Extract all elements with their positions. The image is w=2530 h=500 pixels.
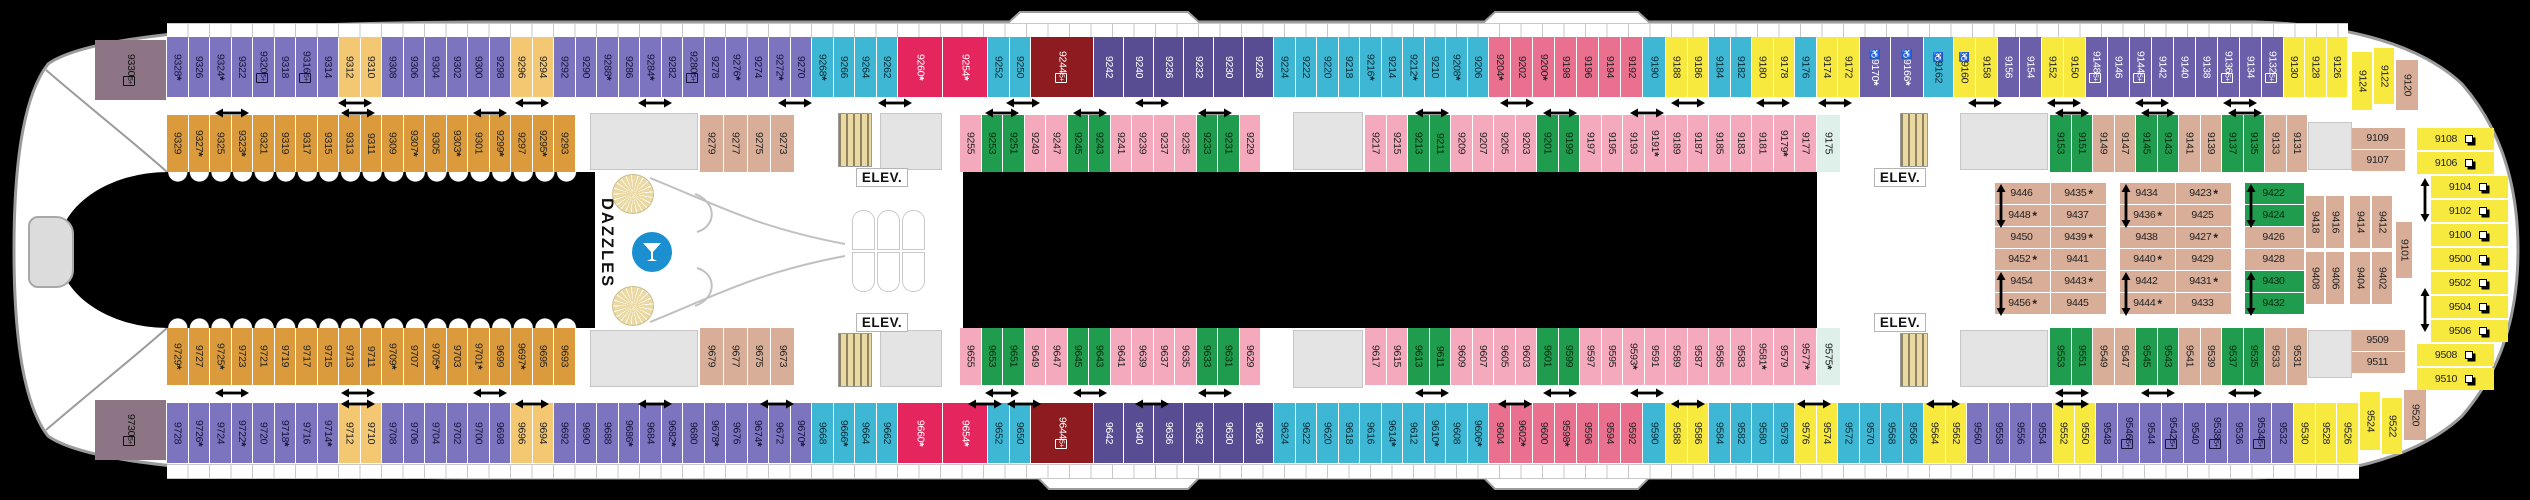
cabin-9714[interactable]: 9714* bbox=[318, 403, 339, 463]
cabin-9274[interactable]: 9274 bbox=[748, 37, 769, 97]
cabin-9300[interactable]: 9300 bbox=[468, 37, 489, 97]
cabin-9425[interactable]: 9425 bbox=[2176, 205, 2231, 226]
cabin-9214[interactable]: 9214 bbox=[1382, 37, 1403, 97]
cabin-9145[interactable]: 9145 bbox=[2136, 115, 2157, 172]
cabin-9538[interactable]: 95385+ bbox=[2206, 403, 2227, 463]
cabin-9590[interactable]: 9590 bbox=[1643, 403, 1665, 463]
cabin-9630[interactable]: 9630 bbox=[1214, 403, 1243, 463]
cabin-9188[interactable]: 9188 bbox=[1666, 37, 1687, 97]
cabin-9162[interactable]: ♿9162 bbox=[1924, 37, 1953, 97]
cabin-9510[interactable]: 9510 bbox=[2417, 368, 2494, 390]
cabin-9690[interactable]: 9690 bbox=[576, 403, 597, 463]
cabin-9179[interactable]: 9179* bbox=[1774, 115, 1795, 172]
cabin-9655[interactable]: 9655 bbox=[960, 328, 981, 385]
cabin-9723[interactable]: 9723 bbox=[232, 328, 253, 385]
cabin-9592[interactable]: 9592 bbox=[1621, 403, 1642, 463]
cabin-9522[interactable]: 9522 bbox=[2382, 398, 2402, 454]
cabin-9231[interactable]: 9231 bbox=[1218, 115, 1239, 172]
cabin-9531[interactable]: 9531 bbox=[2287, 328, 2308, 385]
cabin-9237[interactable]: 9237 bbox=[1154, 115, 1175, 172]
cabin-9688[interactable]: 9688 bbox=[597, 403, 618, 463]
cabin-9607[interactable]: 9607 bbox=[1473, 328, 1494, 385]
cabin-9315[interactable]: 9315 bbox=[318, 115, 339, 172]
cabin-9273[interactable]: 9273 bbox=[771, 115, 794, 172]
elevator-car[interactable] bbox=[852, 252, 875, 292]
cabin-9408[interactable]: 9408 bbox=[2306, 252, 2324, 304]
cabin-9130[interactable]: 9130 bbox=[2284, 37, 2305, 97]
cabin-9309[interactable]: 9309 bbox=[382, 115, 403, 172]
cabin-9104[interactable]: 9104 bbox=[2431, 176, 2508, 198]
cabin-9235[interactable]: 9235 bbox=[1175, 115, 1196, 172]
cabin-9534[interactable]: 95345+ bbox=[2250, 403, 2271, 463]
cabin-9241[interactable]: 9241 bbox=[1111, 115, 1132, 172]
cabin-9543[interactable]: 9543 bbox=[2158, 328, 2179, 385]
cabin-9290[interactable]: 9290 bbox=[576, 37, 597, 97]
stairwell[interactable] bbox=[1900, 333, 1928, 387]
elevator-car[interactable] bbox=[877, 252, 900, 292]
cabin-9176[interactable]: 9176 bbox=[1795, 37, 1816, 97]
cabin-9307[interactable]: 9307* bbox=[404, 115, 425, 172]
cabin-9229[interactable]: 9229 bbox=[1240, 115, 1261, 172]
cabin-9190[interactable]: 9190 bbox=[1643, 37, 1665, 97]
cabin-9206[interactable]: 9206 bbox=[1468, 37, 1489, 97]
cabin-9504[interactable]: 9504 bbox=[2431, 296, 2508, 318]
cabin-9140[interactable]: 9140 bbox=[2174, 37, 2195, 97]
cabin-9673[interactable]: 9673 bbox=[771, 328, 794, 385]
cabin-9199[interactable]: 9199 bbox=[1559, 115, 1580, 172]
cabin-9217[interactable]: 9217 bbox=[1365, 115, 1386, 172]
cabin-9226[interactable]: 9226 bbox=[1244, 37, 1273, 97]
cabin-9418[interactable]: 9418 bbox=[2306, 196, 2324, 248]
cabin-9322[interactable]: 9322 bbox=[232, 37, 253, 97]
cabin-9122[interactable]: 9122 bbox=[2374, 48, 2394, 104]
cabin-9509[interactable]: 9509 bbox=[2352, 330, 2405, 351]
cabin-9610[interactable]: 9610* bbox=[1425, 403, 1446, 463]
cabin-9532[interactable]: 9532 bbox=[2272, 403, 2293, 463]
elevator-car[interactable] bbox=[902, 252, 925, 292]
cabin-9730[interactable]: 97305+ bbox=[95, 400, 166, 460]
cabin-9443[interactable]: 9443* bbox=[2051, 271, 2106, 292]
cabin-9699[interactable]: 9699 bbox=[490, 328, 511, 385]
cabin-9132[interactable]: 91325+ bbox=[2262, 37, 2283, 97]
cabin-9138[interactable]: 9138 bbox=[2196, 37, 2217, 97]
cabin-9548[interactable]: 9548 bbox=[2096, 403, 2117, 463]
cabin-9635[interactable]: 9635 bbox=[1175, 328, 1196, 385]
cabin-9284[interactable]: 9284* bbox=[640, 37, 661, 97]
cabin-9439[interactable]: 9439* bbox=[2051, 227, 2106, 248]
cabin-9708[interactable]: 9708 bbox=[382, 403, 403, 463]
cabin-9286[interactable]: 9286 bbox=[619, 37, 640, 97]
cabin-9172[interactable]: 9172 bbox=[1838, 37, 1859, 97]
cabin-9506[interactable]: 9506 bbox=[2431, 320, 2508, 342]
cabin-9314[interactable]: 9314 bbox=[318, 37, 339, 97]
cabin-9275[interactable]: 9275 bbox=[748, 115, 771, 172]
cabin-9581[interactable]: 9581* bbox=[1752, 328, 1773, 385]
cabin-9598[interactable]: 9598* bbox=[1555, 403, 1576, 463]
cabin-9612[interactable]: 9612 bbox=[1403, 403, 1424, 463]
cabin-9579[interactable]: 9579 bbox=[1774, 328, 1795, 385]
cabin-9435[interactable]: 9435* bbox=[2051, 183, 2106, 204]
cabin-9524[interactable]: 9524 bbox=[2360, 392, 2380, 450]
cabin-9184[interactable]: 9184 bbox=[1709, 37, 1730, 97]
cabin-9719[interactable]: 9719 bbox=[275, 328, 296, 385]
cabin-9715[interactable]: 9715 bbox=[318, 328, 339, 385]
cabin-9156[interactable]: 9156 bbox=[1998, 37, 2019, 97]
cabin-9222[interactable]: 9222 bbox=[1296, 37, 1317, 97]
cabin-9177[interactable]: 9177 bbox=[1795, 115, 1816, 172]
cabin-9170[interactable]: ♿9170* bbox=[1860, 37, 1890, 97]
cabin-9208[interactable]: 9208* bbox=[1446, 37, 1467, 97]
cabin-9549[interactable]: 9549 bbox=[2093, 328, 2114, 385]
cabin-9272[interactable]: 9272* bbox=[769, 37, 790, 97]
cabin-9440[interactable]: 9440* bbox=[2120, 249, 2175, 270]
cabin-9716[interactable]: 9716 bbox=[296, 403, 317, 463]
cabin-9611[interactable]: 9611 bbox=[1430, 328, 1451, 385]
cabin-9319[interactable]: 9319 bbox=[275, 115, 296, 172]
cabin-9186[interactable]: 9186 bbox=[1688, 37, 1709, 97]
cabin-9568[interactable]: 9568 bbox=[1881, 403, 1902, 463]
cabin-9276[interactable]: 9276* bbox=[726, 37, 747, 97]
cabin-9599[interactable]: 9599 bbox=[1559, 328, 1580, 385]
cabin-9675[interactable]: 9675 bbox=[748, 328, 771, 385]
cabin-9299[interactable]: 9299* bbox=[490, 115, 511, 172]
cabin-9668[interactable]: 9668 bbox=[812, 403, 833, 463]
cabin-9533[interactable]: 9533 bbox=[2265, 328, 2286, 385]
cabin-9645[interactable]: 9645 bbox=[1068, 328, 1089, 385]
cabin-9320[interactable]: 93205+ bbox=[253, 37, 274, 97]
cabin-9321[interactable]: 9321 bbox=[253, 115, 274, 172]
cabin-9680[interactable]: 9680 bbox=[683, 403, 704, 463]
cabin-9553[interactable]: 9553 bbox=[2050, 328, 2071, 385]
cabin-9207[interactable]: 9207 bbox=[1473, 115, 1494, 172]
cabin-9542[interactable]: 95425+ bbox=[2162, 403, 2183, 463]
cabin-9133[interactable]: 9133 bbox=[2265, 115, 2286, 172]
cabin-9150[interactable]: 9150 bbox=[2064, 37, 2085, 97]
cabin-9185[interactable]: 9185 bbox=[1709, 115, 1730, 172]
cabin-9441[interactable]: 9441 bbox=[2051, 249, 2106, 270]
cabin-9154[interactable]: 9154 bbox=[2020, 37, 2041, 97]
cabin-9726[interactable]: 9726* bbox=[189, 403, 210, 463]
cabin-9660[interactable]: 9660* bbox=[898, 403, 942, 463]
cabin-9620[interactable]: 9620 bbox=[1317, 403, 1338, 463]
cabin-9593[interactable]: 9593* bbox=[1623, 328, 1644, 385]
cabin-9551[interactable]: 9551 bbox=[2072, 328, 2093, 385]
cabin-9108[interactable]: 9108 bbox=[2417, 128, 2494, 150]
cabin-9584[interactable]: 9584 bbox=[1709, 403, 1730, 463]
cabin-9288[interactable]: 9288* bbox=[597, 37, 618, 97]
cabin-9250[interactable]: 9250 bbox=[1010, 37, 1031, 97]
cabin-9704[interactable]: 9704 bbox=[425, 403, 446, 463]
cabin-9540[interactable]: 9540 bbox=[2184, 403, 2205, 463]
cabin-9637[interactable]: 9637 bbox=[1154, 328, 1175, 385]
cabin-9180[interactable]: 9180 bbox=[1752, 37, 1773, 97]
cabin-9252[interactable]: 9252 bbox=[988, 37, 1009, 97]
cabin-9556[interactable]: 9556 bbox=[2010, 403, 2031, 463]
cabin-9124[interactable]: 9124 bbox=[2352, 52, 2372, 110]
cabin-9572[interactable]: 9572 bbox=[1838, 403, 1859, 463]
cabin-9624[interactable]: 9624 bbox=[1274, 403, 1295, 463]
cabin-9427[interactable]: 9427* bbox=[2176, 227, 2231, 248]
cabin-9570[interactable]: 9570 bbox=[1860, 403, 1881, 463]
cabin-9642[interactable]: 9642 bbox=[1094, 403, 1123, 463]
cabin-9233[interactable]: 9233 bbox=[1197, 115, 1218, 172]
cabin-9144[interactable]: 91445+ bbox=[2130, 37, 2151, 97]
cabin-9651[interactable]: 9651 bbox=[1003, 328, 1024, 385]
cabin-9240[interactable]: 9240 bbox=[1124, 37, 1153, 97]
cabin-9725[interactable]: 9725* bbox=[210, 328, 231, 385]
cabin-9137[interactable]: 9137 bbox=[2222, 115, 2243, 172]
cabin-9724[interactable]: 9724 bbox=[210, 403, 231, 463]
cabin-9102[interactable]: 9102 bbox=[2431, 200, 2508, 222]
cabin-9148[interactable]: 91485+ bbox=[2086, 37, 2107, 97]
cabin-9589[interactable]: 9589 bbox=[1666, 328, 1687, 385]
cabin-9706[interactable]: 9706 bbox=[404, 403, 425, 463]
cabin-9329[interactable]: 9329 bbox=[167, 115, 188, 172]
cabin-9437[interactable]: 9437 bbox=[2051, 205, 2106, 226]
cabin-9653[interactable]: 9653 bbox=[982, 328, 1003, 385]
cabin-9500[interactable]: 9500 bbox=[2431, 248, 2508, 270]
cabin-9428[interactable]: 9428 bbox=[2245, 249, 2304, 270]
cabin-9197[interactable]: 9197 bbox=[1580, 115, 1601, 172]
cabin-9629[interactable]: 9629 bbox=[1240, 328, 1261, 385]
cabin-9136[interactable]: 91365+ bbox=[2218, 37, 2239, 97]
cabin-9626[interactable]: 9626 bbox=[1244, 403, 1273, 463]
cabin-9649[interactable]: 9649 bbox=[1025, 328, 1046, 385]
cabin-9631[interactable]: 9631 bbox=[1218, 328, 1239, 385]
cabin-9107[interactable]: 9107 bbox=[2352, 150, 2405, 171]
cabin-9215[interactable]: 9215 bbox=[1387, 115, 1408, 172]
cabin-9306[interactable]: 9306 bbox=[404, 37, 425, 97]
cabin-9545[interactable]: 9545 bbox=[2136, 328, 2157, 385]
cabin-9181[interactable]: 9181 bbox=[1752, 115, 1773, 172]
cabin-9262[interactable]: 9262 bbox=[877, 37, 898, 97]
elevator-car[interactable] bbox=[877, 210, 900, 250]
cabin-9151[interactable]: 9151 bbox=[2072, 115, 2093, 172]
cabin-9717[interactable]: 9717 bbox=[296, 328, 317, 385]
cabin-9202[interactable]: 9202 bbox=[1511, 37, 1532, 97]
stairwell[interactable] bbox=[838, 333, 872, 387]
cabin-9236[interactable]: 9236 bbox=[1154, 37, 1183, 97]
cabin-9153[interactable]: 9153 bbox=[2050, 115, 2071, 172]
cabin-9323[interactable]: 9323* bbox=[232, 115, 253, 172]
cabin-9245[interactable]: 9245 bbox=[1068, 115, 1089, 172]
cabin-9677[interactable]: 9677 bbox=[724, 328, 747, 385]
cabin-9330[interactable]: 93305+ bbox=[95, 40, 166, 100]
cabin-9402[interactable]: 9402 bbox=[2372, 252, 2392, 304]
cabin-9423[interactable]: 9423* bbox=[2176, 183, 2231, 204]
cabin-9729[interactable]: 9729* bbox=[167, 328, 188, 385]
cabin-9312[interactable]: 9312 bbox=[339, 37, 360, 97]
cabin-9325[interactable]: 9325 bbox=[210, 115, 231, 172]
cabin-9109[interactable]: 9109 bbox=[2352, 128, 2405, 149]
cabin-9126[interactable]: 9126 bbox=[2327, 37, 2348, 97]
cabin-9502[interactable]: 9502 bbox=[2431, 272, 2508, 294]
cabin-9728[interactable]: 9728 bbox=[167, 403, 188, 463]
cabin-9554[interactable]: 9554 bbox=[2032, 403, 2053, 463]
cabin-9537[interactable]: 9537 bbox=[2222, 328, 2243, 385]
cabin-9152[interactable]: 9152 bbox=[2042, 37, 2063, 97]
cabin-9720[interactable]: 9720 bbox=[253, 403, 274, 463]
cabin-9211[interactable]: 9211 bbox=[1430, 115, 1451, 172]
cabin-9520[interactable]: 9520 bbox=[2404, 390, 2426, 440]
cabin-9251[interactable]: 9251 bbox=[1003, 115, 1024, 172]
cabin-9566[interactable]: 9566 bbox=[1903, 403, 1924, 463]
cabin-9605[interactable]: 9605 bbox=[1494, 328, 1515, 385]
cabin-9280[interactable]: 92805+ bbox=[683, 37, 704, 97]
cabin-9701[interactable]: 9701* bbox=[468, 328, 489, 385]
cabin-9528[interactable]: 9528 bbox=[2316, 403, 2337, 463]
cabin-9616[interactable]: 9616 bbox=[1360, 403, 1381, 463]
cabin-9128[interactable]: 9128 bbox=[2305, 37, 2326, 97]
cabin-9647[interactable]: 9647 bbox=[1046, 328, 1067, 385]
cabin-9711[interactable]: 9711 bbox=[361, 328, 382, 385]
cabin-9541[interactable]: 9541 bbox=[2179, 328, 2200, 385]
cabin-9243[interactable]: 9243 bbox=[1089, 115, 1110, 172]
cabin-9254[interactable]: 9254* bbox=[943, 37, 987, 97]
cabin-9268[interactable]: 9268* bbox=[812, 37, 833, 97]
cabin-9404[interactable]: 9404 bbox=[2350, 252, 2370, 304]
cabin-9166[interactable]: ♿9166* bbox=[1891, 37, 1923, 97]
cabin-9198[interactable]: 9198 bbox=[1555, 37, 1576, 97]
stairwell[interactable] bbox=[1900, 113, 1928, 167]
cabin-9511[interactable]: 9511 bbox=[2352, 352, 2405, 373]
cabin-9433[interactable]: 9433 bbox=[2176, 293, 2231, 314]
cabin-9266[interactable]: 9266 bbox=[834, 37, 855, 97]
cabin-9292[interactable]: 9292 bbox=[554, 37, 575, 97]
cabin-9296[interactable]: 9296 bbox=[511, 37, 532, 97]
cabin-9260[interactable]: 9260* bbox=[898, 37, 942, 97]
cabin-9192[interactable]: 9192 bbox=[1621, 37, 1642, 97]
cabin-9210[interactable]: 9210 bbox=[1425, 37, 1446, 97]
cabin-9583[interactable]: 9583 bbox=[1731, 328, 1752, 385]
cabin-9311[interactable]: 9311 bbox=[361, 115, 382, 172]
cabin-9721[interactable]: 9721 bbox=[253, 328, 274, 385]
cabin-9539[interactable]: 9539 bbox=[2201, 328, 2222, 385]
cabin-9613[interactable]: 9613 bbox=[1408, 328, 1429, 385]
cabin-9303[interactable]: 9303* bbox=[447, 115, 468, 172]
cabin-9242[interactable]: 9242 bbox=[1094, 37, 1123, 97]
cabin-9160[interactable]: ♿9160 bbox=[1954, 37, 1975, 97]
cabin-9678[interactable]: 9678* bbox=[705, 403, 726, 463]
cabin-9580[interactable]: 9580 bbox=[1752, 403, 1773, 463]
cabin-9546[interactable]: 95465+ bbox=[2118, 403, 2139, 463]
cabin-9596[interactable]: 9596 bbox=[1577, 403, 1598, 463]
cabin-9713[interactable]: 9713 bbox=[339, 328, 360, 385]
cabin-9412[interactable]: 9412 bbox=[2372, 196, 2392, 248]
cabin-9560[interactable]: 9560 bbox=[1967, 403, 1988, 463]
cabin-9700[interactable]: 9700 bbox=[468, 403, 489, 463]
cabin-9201[interactable]: 9201 bbox=[1537, 115, 1558, 172]
cabin-9213[interactable]: 9213 bbox=[1408, 115, 1429, 172]
cabin-9544[interactable]: 9544 bbox=[2140, 403, 2161, 463]
cabin-9328[interactable]: 9328* bbox=[167, 37, 188, 97]
cabin-9594[interactable]: 9594 bbox=[1599, 403, 1620, 463]
cabin-9294[interactable]: 9294 bbox=[533, 37, 554, 97]
cabin-9302[interactable]: 9302 bbox=[447, 37, 468, 97]
cabin-9191[interactable]: 9191* bbox=[1645, 115, 1666, 172]
cabin-9253[interactable]: 9253 bbox=[982, 115, 1003, 172]
cabin-9595[interactable]: 9595 bbox=[1602, 328, 1623, 385]
cabin-9617[interactable]: 9617 bbox=[1365, 328, 1386, 385]
cabin-9526[interactable]: 9526 bbox=[2337, 403, 2358, 463]
cabin-9633[interactable]: 9633 bbox=[1197, 328, 1218, 385]
cabin-9530[interactable]: 9530 bbox=[2294, 403, 2315, 463]
cabin-9603[interactable]: 9603 bbox=[1516, 328, 1537, 385]
cabin-9416[interactable]: 9416 bbox=[2326, 196, 2344, 248]
elevator-car[interactable] bbox=[852, 210, 875, 250]
cabin-9279[interactable]: 9279 bbox=[700, 115, 723, 172]
cabin-9692[interactable]: 9692 bbox=[554, 403, 575, 463]
cabin-9120[interactable]: 9120 bbox=[2396, 60, 2418, 110]
cabin-9139[interactable]: 9139 bbox=[2201, 115, 2222, 172]
cabin-9727[interactable]: 9727 bbox=[189, 328, 210, 385]
cabin-9220[interactable]: 9220 bbox=[1317, 37, 1338, 97]
cabin-9149[interactable]: 9149 bbox=[2093, 115, 2114, 172]
cabin-9414[interactable]: 9414 bbox=[2350, 196, 2370, 248]
cabin-9707[interactable]: 9707 bbox=[404, 328, 425, 385]
cabin-9587[interactable]: 9587 bbox=[1688, 328, 1709, 385]
cabin-9632[interactable]: 9632 bbox=[1184, 403, 1213, 463]
cabin-9709[interactable]: 9709* bbox=[382, 328, 403, 385]
cabin-9305[interactable]: 9305 bbox=[425, 115, 446, 172]
cabin-9639[interactable]: 9639 bbox=[1132, 328, 1153, 385]
cabin-9317[interactable]: 9317 bbox=[296, 115, 317, 172]
cabin-9244[interactable]: 92445+ bbox=[1031, 37, 1093, 97]
cabin-9326[interactable]: 9326 bbox=[189, 37, 210, 97]
cabin-9310[interactable]: 9310 bbox=[361, 37, 382, 97]
cabin-9270[interactable]: 9270 bbox=[791, 37, 812, 97]
cabin-9297[interactable]: 9297 bbox=[511, 115, 532, 172]
cabin-9209[interactable]: 9209 bbox=[1451, 115, 1472, 172]
cabin-9431[interactable]: 9431* bbox=[2176, 271, 2231, 292]
cabin-9718[interactable]: 9718* bbox=[275, 403, 296, 463]
cabin-9318[interactable]: 9318 bbox=[275, 37, 296, 97]
cabin-9585[interactable]: 9585 bbox=[1709, 328, 1730, 385]
cabin-9327[interactable]: 9327* bbox=[189, 115, 210, 172]
cabin-9175[interactable]: 9175 bbox=[1817, 115, 1840, 172]
cabin-9676[interactable]: 9676 bbox=[726, 403, 747, 463]
cabin-9194[interactable]: 9194 bbox=[1599, 37, 1620, 97]
cabin-9218[interactable]: 9218 bbox=[1339, 37, 1360, 97]
cabin-9158[interactable]: 9158 bbox=[1976, 37, 1997, 97]
cabin-9249[interactable]: 9249 bbox=[1025, 115, 1046, 172]
cabin-9224[interactable]: 9224 bbox=[1274, 37, 1295, 97]
cabin-9643[interactable]: 9643 bbox=[1089, 328, 1110, 385]
cabin-9597[interactable]: 9597 bbox=[1580, 328, 1601, 385]
cabin-9135[interactable]: 9135 bbox=[2244, 115, 2265, 172]
cabin-9232[interactable]: 9232 bbox=[1184, 37, 1213, 97]
cabin-9508[interactable]: 9508 bbox=[2417, 344, 2494, 366]
cabin-9106[interactable]: 9106 bbox=[2417, 152, 2494, 174]
cabin-9239[interactable]: 9239 bbox=[1132, 115, 1153, 172]
cabin-9183[interactable]: 9183 bbox=[1731, 115, 1752, 172]
cabin-9100[interactable]: 9100 bbox=[2431, 224, 2508, 246]
cabin-9606[interactable]: 9606* bbox=[1468, 403, 1489, 463]
cabin-9664[interactable]: 9664 bbox=[855, 403, 876, 463]
cabin-9230[interactable]: 9230 bbox=[1214, 37, 1243, 97]
cabin-9247[interactable]: 9247 bbox=[1046, 115, 1067, 172]
cabin-9697[interactable]: 9697* bbox=[511, 328, 532, 385]
cabin-9324[interactable]: 9324* bbox=[210, 37, 231, 97]
cabin-9143[interactable]: 9143 bbox=[2158, 115, 2179, 172]
cabin-9702[interactable]: 9702 bbox=[447, 403, 468, 463]
cabin-9578[interactable]: 9578 bbox=[1774, 403, 1795, 463]
cabin-9278[interactable]: 9278 bbox=[705, 37, 726, 97]
cabin-9196[interactable]: 9196 bbox=[1577, 37, 1598, 97]
cabin-9600[interactable]: 9600 bbox=[1533, 403, 1554, 463]
cabin-9679[interactable]: 9679 bbox=[700, 328, 723, 385]
cabin-9558[interactable]: 9558 bbox=[1989, 403, 2010, 463]
